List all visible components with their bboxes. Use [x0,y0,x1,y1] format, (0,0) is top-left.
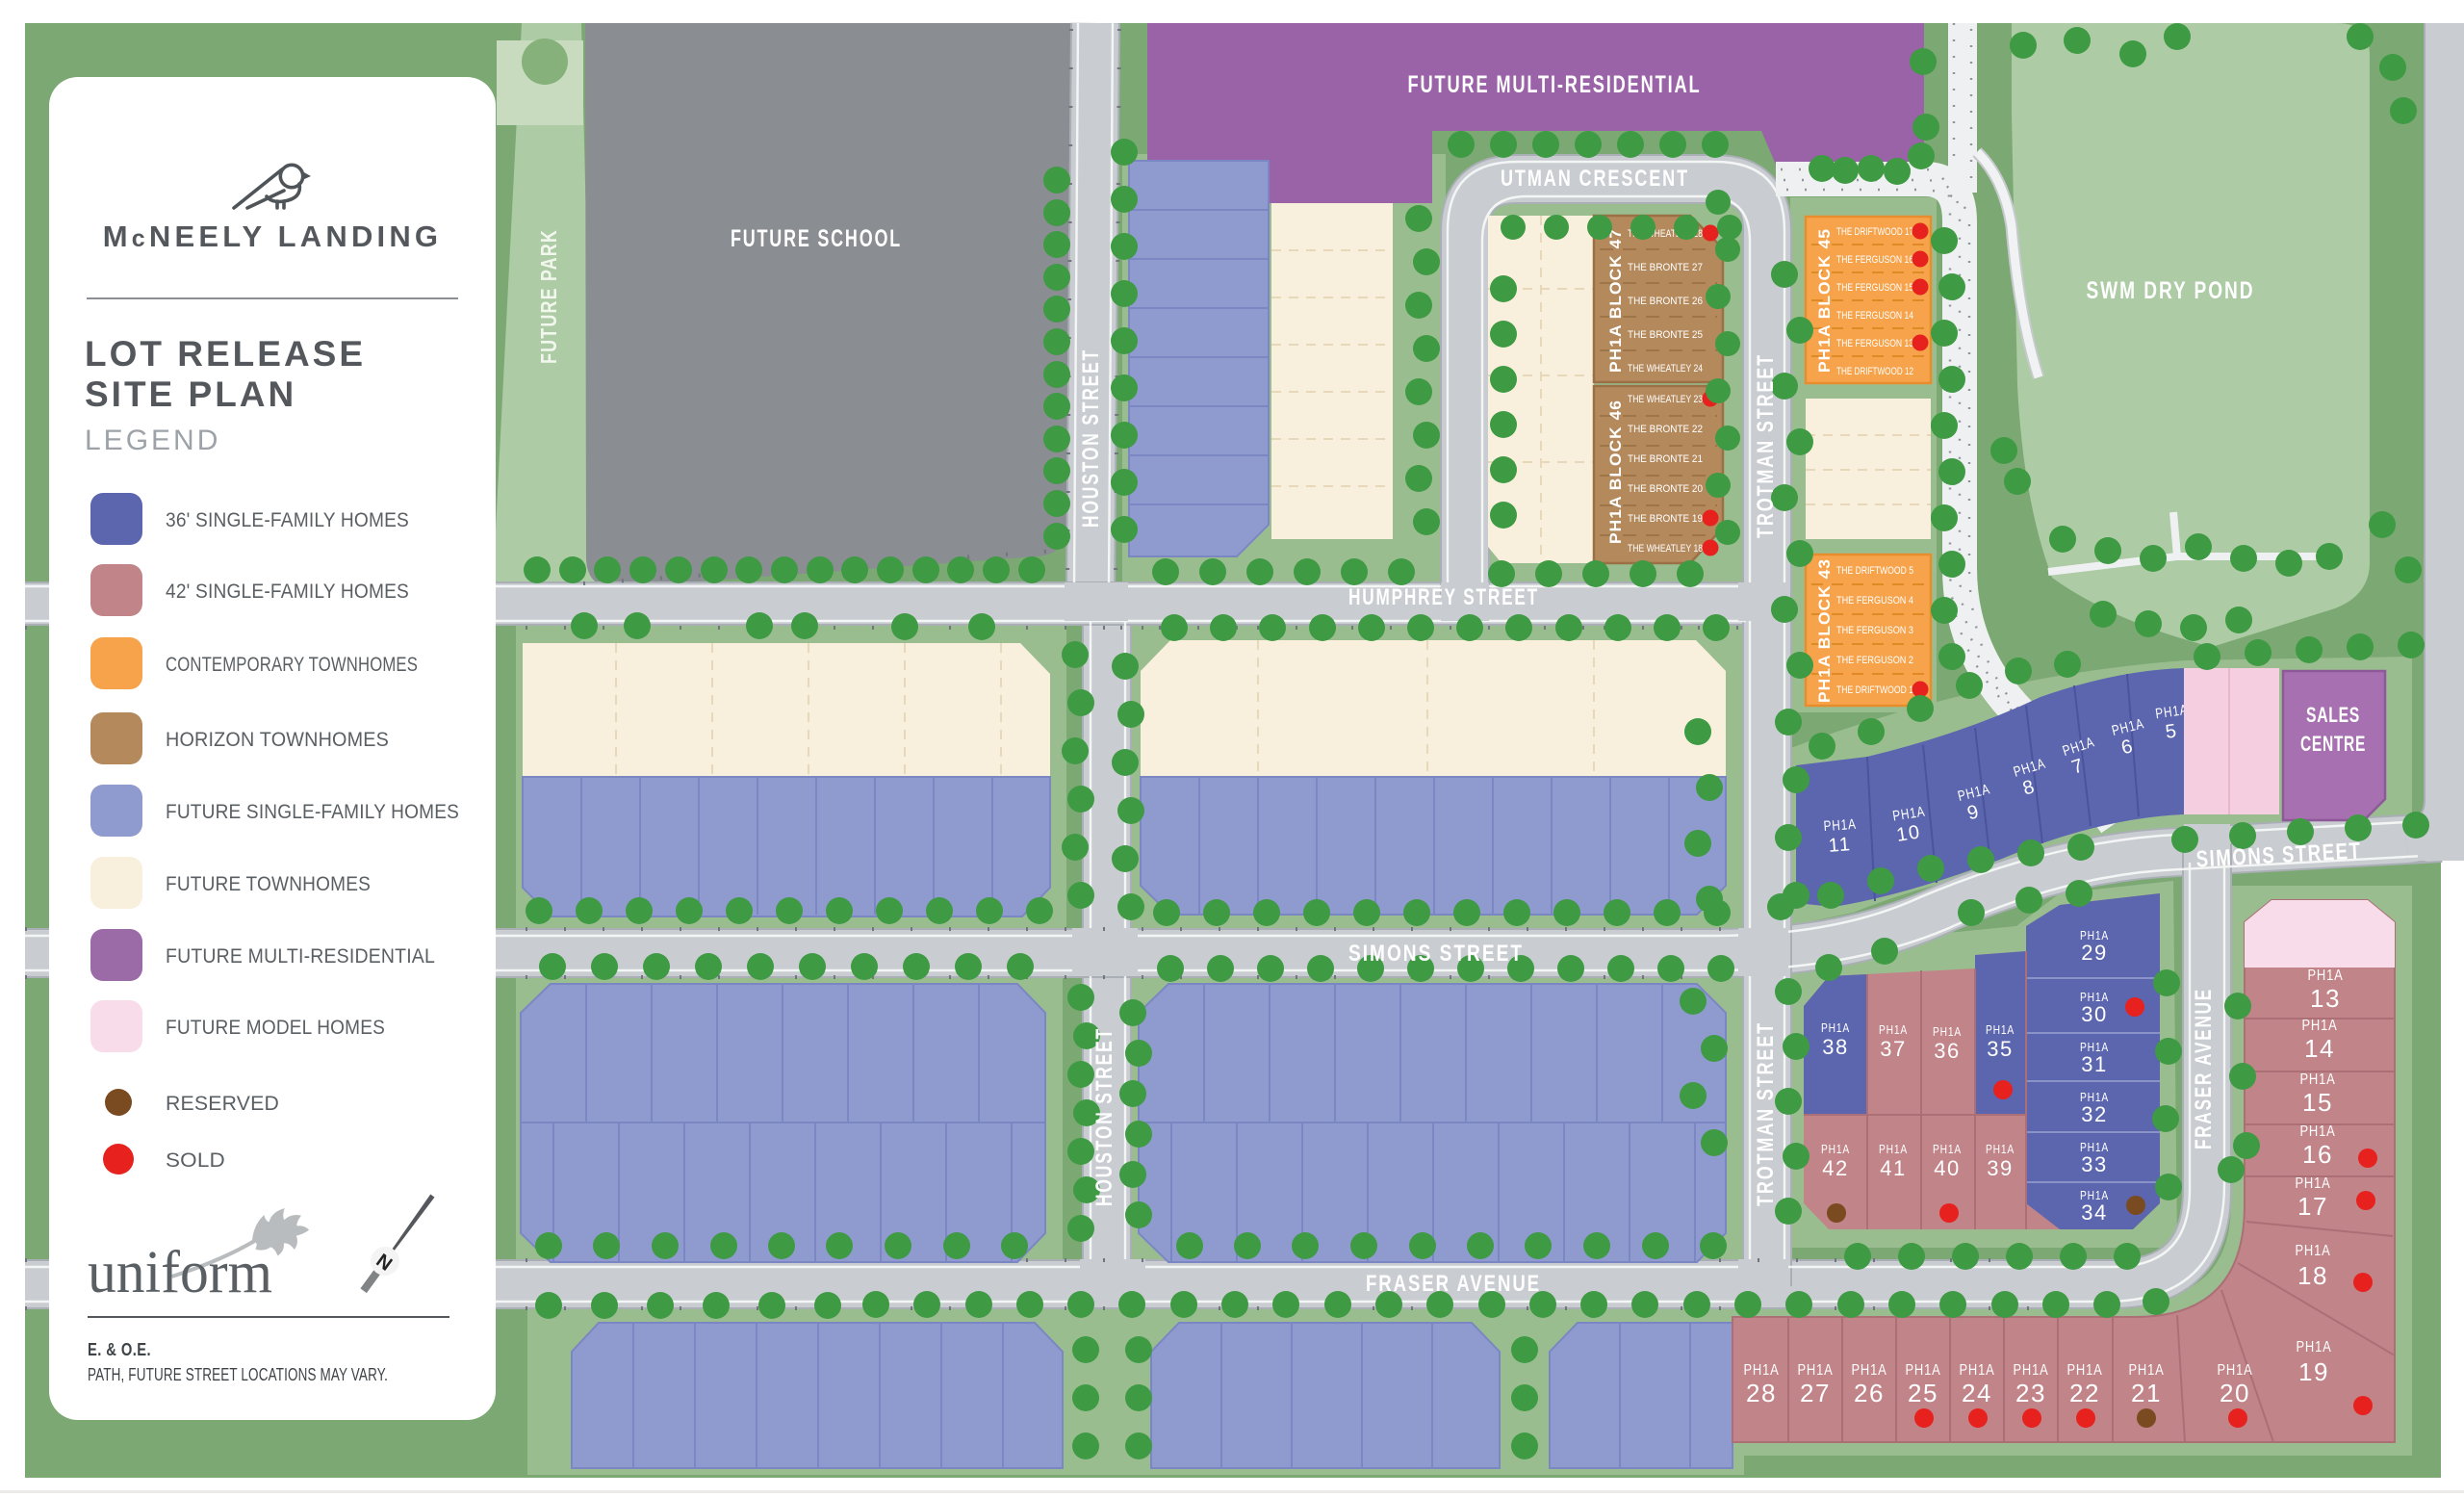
svg-text:PH1A: PH1A [2297,1339,2332,1355]
svg-text:FUTURE MULTI-RESIDENTIAL: FUTURE MULTI-RESIDENTIAL [166,945,435,968]
svg-text:RESERVED: RESERVED [166,1093,279,1115]
svg-text:FUTURE PARK: FUTURE PARK [536,229,561,364]
svg-text:24: 24 [1962,1379,1992,1407]
svg-text:26: 26 [1854,1379,1885,1407]
svg-text:36' SINGLE-FAMILY HOMES: 36' SINGLE-FAMILY HOMES [166,509,409,531]
svg-text:THE FERGUSON 4: THE FERGUSON 4 [1836,595,1913,607]
svg-text:PH1A: PH1A [1906,1362,1941,1379]
svg-text:37: 37 [1880,1037,1906,1061]
svg-text:THE WHEATLEY 24: THE WHEATLEY 24 [1628,363,1703,374]
svg-text:11: 11 [1828,834,1852,857]
svg-text:THE FERGUSON 15: THE FERGUSON 15 [1836,282,1913,294]
svg-text:29: 29 [2081,941,2107,965]
svg-text:PH1A: PH1A [2014,1362,2049,1379]
svg-text:FUTURE MULTI-RESIDENTIAL: FUTURE MULTI-RESIDENTIAL [1408,71,1702,98]
svg-text:PH1A: PH1A [1823,816,1857,835]
svg-text:HOUSTON STREET: HOUSTON STREET [1078,348,1104,528]
svg-text:PH1A: PH1A [2300,1071,2336,1088]
svg-text:UTMAN CRESCENT: UTMAN CRESCENT [1501,166,1689,192]
svg-text:THE WHEATLEY 23: THE WHEATLEY 23 [1628,394,1703,405]
svg-text:15: 15 [2302,1088,2333,1117]
svg-text:34: 34 [2081,1200,2107,1225]
svg-text:19: 19 [2298,1357,2329,1386]
svg-text:HORIZON TOWNHOMES: HORIZON TOWNHOMES [166,729,389,751]
svg-text:THE WHEATLEY 18: THE WHEATLEY 18 [1628,543,1703,555]
svg-text:E. & O.E.: E. & O.E. [88,1340,151,1359]
svg-text:SWM DRY POND: SWM DRY POND [2087,277,2255,304]
svg-text:THE BRONTE 27: THE BRONTE 27 [1628,262,1703,273]
svg-text:SITE PLAN: SITE PLAN [85,374,296,414]
svg-text:PH1A: PH1A [2308,968,2344,984]
svg-text:PH1A BLOCK 46: PH1A BLOCK 46 [1606,400,1625,544]
svg-text:13: 13 [2310,984,2341,1013]
svg-text:30: 30 [2081,1002,2107,1026]
svg-text:SALES: SALES [2306,703,2360,727]
svg-text:McNEELY LANDING: McNEELY LANDING [103,219,443,253]
svg-text:31: 31 [2081,1052,2107,1076]
svg-text:PH1A: PH1A [1879,1142,1908,1156]
svg-text:40: 40 [1934,1156,1960,1180]
svg-text:PH1A: PH1A [1798,1362,1834,1379]
svg-text:CONTEMPORARY TOWNHOMES: CONTEMPORARY TOWNHOMES [166,654,418,676]
svg-text:PH1A: PH1A [2129,1362,2165,1379]
svg-text:THE DRIFTWOOD 12: THE DRIFTWOOD 12 [1836,366,1913,377]
svg-text:LEGEND: LEGEND [85,425,220,456]
svg-text:CENTRE: CENTRE [2300,732,2366,756]
svg-text:14: 14 [2304,1034,2335,1063]
svg-text:FRASER AVENUE: FRASER AVENUE [2191,988,2217,1149]
svg-text:18: 18 [2297,1261,2328,1290]
svg-text:10: 10 [1895,821,1922,846]
svg-text:PH1A: PH1A [1852,1362,1887,1379]
svg-text:PH1A: PH1A [1744,1362,1780,1379]
svg-text:THE FERGUSON 16: THE FERGUSON 16 [1836,254,1913,266]
svg-text:PH1A: PH1A [2296,1175,2331,1192]
svg-text:HOUSTON STREET: HOUSTON STREET [1091,1027,1117,1206]
svg-text:21: 21 [2131,1379,2162,1407]
svg-text:36: 36 [1934,1039,1960,1063]
svg-text:THE BRONTE 25: THE BRONTE 25 [1628,329,1703,341]
svg-text:PH1A: PH1A [2067,1362,2103,1379]
svg-text:THE FERGUSON 3: THE FERGUSON 3 [1836,625,1913,636]
svg-text:THE DRIFTWOOD 5: THE DRIFTWOOD 5 [1836,565,1913,577]
svg-text:42' SINGLE-FAMILY HOMES: 42' SINGLE-FAMILY HOMES [166,581,409,603]
svg-text:THE DRIFTWOOD 17: THE DRIFTWOOD 17 [1836,226,1913,238]
svg-text:PH1A: PH1A [2296,1243,2331,1259]
svg-text:PH1A: PH1A [1821,1020,1850,1035]
svg-text:39: 39 [1987,1156,2013,1180]
svg-text:25: 25 [1908,1379,1938,1407]
svg-text:17: 17 [2297,1192,2328,1221]
svg-text:PATH, FUTURE STREET LOCATIONS: PATH, FUTURE STREET LOCATIONS MAY VARY. [88,1365,388,1384]
svg-text:PH1A: PH1A [1879,1022,1908,1037]
svg-text:23: 23 [2015,1379,2046,1407]
svg-text:28: 28 [1746,1379,1777,1407]
svg-text:THE FERGUSON 14: THE FERGUSON 14 [1836,310,1913,322]
svg-text:32: 32 [2081,1102,2107,1126]
svg-text:33: 33 [2081,1152,2107,1176]
svg-text:TROTMAN STREET: TROTMAN STREET [1753,353,1779,538]
svg-text:16: 16 [2302,1140,2333,1169]
svg-text:THE FERGUSON 13: THE FERGUSON 13 [1836,338,1913,349]
svg-text:PH1A: PH1A [1960,1362,1995,1379]
svg-text:THE FERGUSON 2: THE FERGUSON 2 [1836,655,1913,666]
svg-text:THE BRONTE 22: THE BRONTE 22 [1628,424,1703,435]
svg-text:THE BRONTE 26: THE BRONTE 26 [1628,296,1703,307]
svg-text:FUTURE MODEL HOMES: FUTURE MODEL HOMES [166,1017,385,1039]
svg-text:HUMPHREY STREET: HUMPHREY STREET [1348,584,1539,610]
svg-text:FRASER AVENUE: FRASER AVENUE [1366,1271,1541,1297]
svg-text:THE BRONTE 19: THE BRONTE 19 [1628,513,1703,525]
svg-text:PH1A: PH1A [1933,1142,1962,1156]
svg-text:THE BRONTE 20: THE BRONTE 20 [1628,483,1703,495]
svg-text:27: 27 [1800,1379,1831,1407]
svg-text:PH1A: PH1A [2300,1123,2336,1140]
svg-text:PH1A: PH1A [2302,1018,2338,1034]
svg-text:uniform: uniform [88,1240,272,1305]
svg-text:41: 41 [1880,1156,1906,1180]
svg-text:20: 20 [2220,1379,2250,1407]
svg-text:THE BRONTE 21: THE BRONTE 21 [1628,453,1703,465]
svg-text:FUTURE SCHOOL: FUTURE SCHOOL [731,225,902,252]
svg-text:35: 35 [1987,1037,2013,1061]
svg-text:PH1A: PH1A [1986,1022,2015,1037]
svg-text:PH1A BLOCK 45: PH1A BLOCK 45 [1815,228,1834,373]
svg-text:THE DRIFTWOOD 1: THE DRIFTWOOD 1 [1836,684,1913,696]
svg-text:42: 42 [1822,1156,1848,1180]
svg-text:PH1A: PH1A [2218,1362,2253,1379]
svg-text:38: 38 [1822,1035,1848,1059]
svg-text:PH1A BLOCK 43: PH1A BLOCK 43 [1815,558,1834,703]
svg-text:PH1A: PH1A [1986,1142,2015,1156]
svg-text:PH1A: PH1A [1933,1024,1962,1039]
svg-text:TROTMAN STREET: TROTMAN STREET [1753,1021,1779,1206]
svg-text:FUTURE TOWNHOMES: FUTURE TOWNHOMES [166,873,371,895]
svg-text:PH1A BLOCK 47: PH1A BLOCK 47 [1606,228,1625,373]
svg-text:SOLD: SOLD [166,1149,225,1172]
svg-text:SIMONS STREET: SIMONS STREET [1348,941,1524,967]
svg-text:FUTURE SINGLE-FAMILY HOMES: FUTURE SINGLE-FAMILY HOMES [166,801,459,823]
svg-text:22: 22 [2069,1379,2100,1407]
svg-text:LOT RELEASE: LOT RELEASE [85,334,366,374]
svg-text:PH1A: PH1A [1821,1142,1850,1156]
